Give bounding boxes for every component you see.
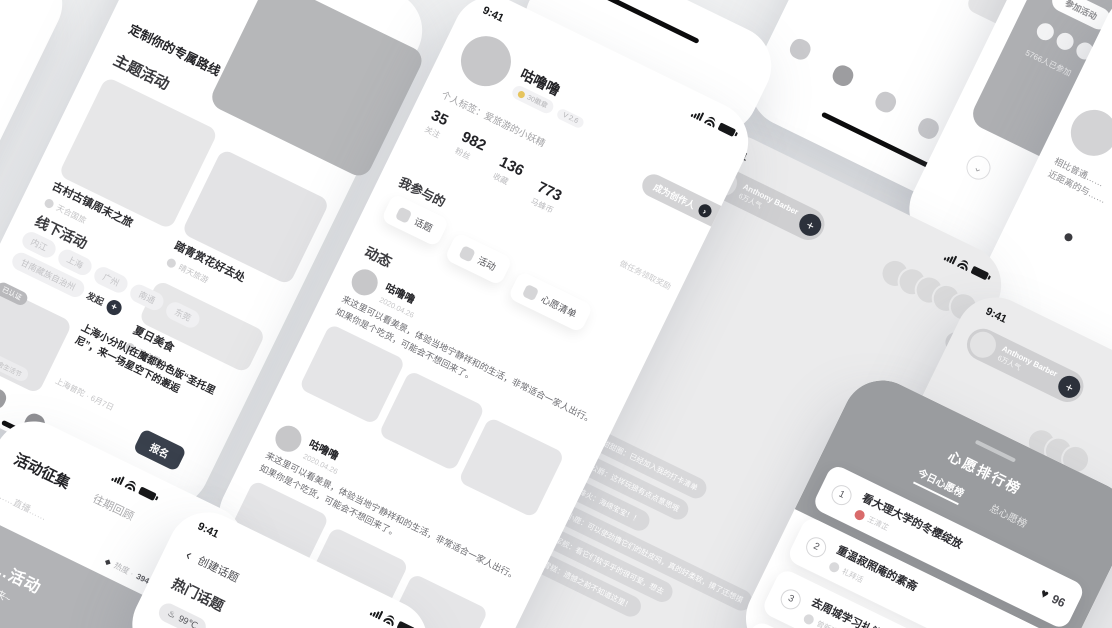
signal-icon: [370, 606, 384, 619]
image-placeholder: [458, 417, 565, 519]
tab-icon[interactable]: [787, 36, 814, 63]
activity-icon: [459, 245, 476, 262]
signup-button[interactable]: 报名: [133, 428, 187, 472]
status-icons: [111, 472, 157, 501]
user-avatar: [828, 560, 841, 573]
wishlist-icon: [522, 283, 539, 300]
tab-icon[interactable]: [872, 89, 899, 116]
follow-button[interactable]: +: [1055, 372, 1084, 401]
follow-button[interactable]: +: [796, 210, 825, 239]
feed-section-title: 动态: [361, 242, 395, 272]
stat-favorites[interactable]: 136收藏: [491, 153, 527, 191]
campaign-tab-history[interactable]: 往期回顾: [90, 490, 137, 524]
detail-text: 相比普通…… 近距离的与……: [1045, 154, 1112, 232]
campaign-subtitle: ……直播……: [0, 488, 49, 523]
avatar: [271, 421, 306, 456]
status-icons: [691, 108, 737, 137]
signal-icon: [111, 472, 125, 485]
stat-coins[interactable]: 773马蜂币: [529, 179, 565, 217]
nav-title[interactable]: 创建话题: [195, 552, 242, 586]
become-creator-button[interactable]: 成为创作人›: [638, 170, 721, 226]
user-avatar: [853, 508, 866, 521]
rank-badge: 3: [778, 586, 805, 613]
wifi-icon: [124, 479, 138, 492]
bullet-icon: [1063, 232, 1074, 243]
campaign-title: 活动征集: [11, 448, 74, 493]
status-time: 9:41: [481, 4, 506, 24]
chevron-down-icon[interactable]: ⌄: [962, 152, 994, 184]
text-placeholder: [0, 621, 21, 628]
author-avatar: [43, 197, 55, 209]
battery-icon: [718, 122, 737, 137]
host-avatar: [966, 327, 1001, 362]
home-indicator[interactable]: [590, 0, 700, 44]
event-photo-tag: 刚好青年旅舍生活节: [0, 340, 30, 383]
status-icons: [944, 251, 990, 280]
signal-icon: [944, 251, 958, 264]
author-avatar: [165, 257, 177, 269]
design-canvas: 参加活动 5766人已参加 ⌄ 相比普通…… 近距离的与…… 9:41: [0, 0, 1112, 628]
status-time: 9:41: [196, 520, 221, 540]
arrow-icon: ›: [696, 202, 713, 219]
profile-avatar[interactable]: [453, 28, 520, 95]
tab-icon[interactable]: [915, 115, 942, 142]
wifi-icon: [383, 613, 397, 626]
status-time: 9:41: [984, 305, 1009, 325]
like-count: 96: [1050, 591, 1068, 609]
battery-icon: [138, 486, 157, 501]
event-meta: 上海普陀 · 6月7日: [53, 375, 115, 413]
rank-badge: 1: [828, 481, 855, 508]
wifi-icon: [957, 258, 971, 271]
tab-icon[interactable]: [0, 385, 9, 412]
text-placeholder: [0, 610, 62, 628]
stat-following[interactable]: 35关注: [423, 107, 451, 141]
tab-wishlist[interactable]: 心愿清单: [508, 271, 594, 333]
status-icons: [370, 606, 416, 628]
flame-icon: ♨: [166, 608, 178, 621]
rank-badge: 2: [803, 533, 830, 560]
wifi-icon: [704, 114, 718, 127]
back-icon[interactable]: ‹: [184, 547, 195, 563]
signal-icon: [691, 108, 705, 121]
user-avatar: [802, 612, 815, 625]
tab-activities[interactable]: 活动: [444, 232, 513, 286]
topic-icon: [395, 206, 412, 223]
heart-icon: ♥: [1038, 585, 1052, 602]
avatar: [347, 265, 382, 300]
verified-badge: 已认证: [0, 280, 30, 307]
avatar: [1063, 102, 1112, 164]
like-button[interactable]: ♥ 96: [1038, 585, 1068, 610]
battery-icon: [397, 620, 416, 628]
home-indicator[interactable]: [821, 112, 936, 171]
level-badge[interactable]: V 2.6: [555, 107, 585, 129]
task-reward-link[interactable]: 做任务领取奖励: [618, 258, 673, 292]
participant-count: 5766人已参加: [1023, 47, 1073, 79]
tab-icon[interactable]: [830, 62, 857, 89]
heat-icon: ◆: [103, 556, 112, 567]
stat-followers[interactable]: 982粉丝: [453, 128, 489, 166]
medal-icon: [517, 89, 526, 98]
tab-all-wishes[interactable]: 总心愿榜: [985, 499, 1030, 535]
battery-icon: [971, 265, 990, 280]
plus-icon: +: [104, 297, 124, 317]
